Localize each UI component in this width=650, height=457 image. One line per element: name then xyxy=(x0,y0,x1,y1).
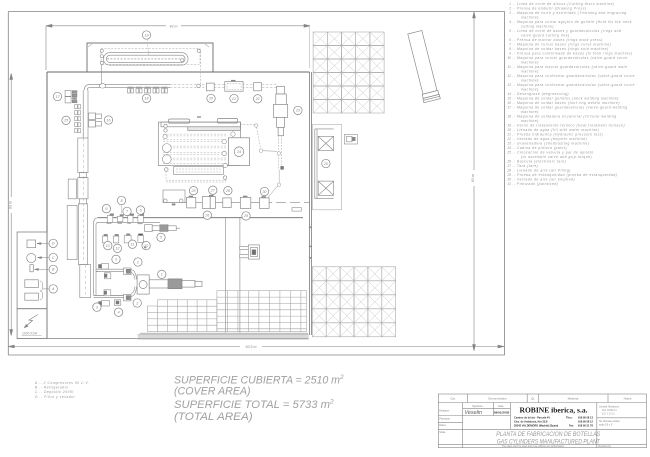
svg-text:20: 20 xyxy=(208,97,213,101)
svg-text:Physician: Physician xyxy=(439,418,450,421)
svg-text:.- Prensa para conformado de b: .- Prensa para conformado de bases (to f… xyxy=(512,51,632,55)
svg-text:5: 5 xyxy=(509,29,511,33)
svg-text:9: 9 xyxy=(105,207,107,211)
svg-text:63 m: 63 m xyxy=(9,201,13,209)
svg-text:8: 8 xyxy=(509,47,511,51)
svg-text:.- Vaciado de aire (air emptie: .- Vaciado de aire (air emptied) xyxy=(512,177,575,181)
svg-text:Scale: Scale xyxy=(439,431,446,434)
svg-text:.- Horno de tratamiento termic: .- Horno de tratamiento termico (heat tr… xyxy=(512,123,625,127)
svg-text:C: C xyxy=(52,256,55,260)
svg-text:.- Prensa de marcar bases (rin: .- Prensa de marcar bases (rings mark pr… xyxy=(512,38,603,42)
svg-text:Ctra. de Andalucia, Km 23,8: Ctra. de Andalucia, Km 23,8 xyxy=(514,419,548,423)
svg-text:22: 22 xyxy=(255,97,260,101)
svg-text:machine): machine) xyxy=(521,110,539,114)
svg-text:9: 9 xyxy=(509,51,511,55)
svg-text:23: 23 xyxy=(295,109,300,113)
svg-text:93.5 m: 93.5 m xyxy=(246,345,257,349)
svg-text:28: 28 xyxy=(506,168,511,172)
svg-text:Notes: Notes xyxy=(624,397,632,401)
svg-text:24: 24 xyxy=(506,146,511,150)
svg-text:Signature: Signature xyxy=(472,405,483,408)
svg-text:20: 20 xyxy=(323,162,328,166)
svg-text:918 95 08 12: 918 95 08 12 xyxy=(578,419,593,423)
svg-text:2: 2 xyxy=(339,374,344,381)
svg-text:Revision by: Revision by xyxy=(599,445,612,448)
svg-text:.- Maquina de soldar bases (ri: .- Maquina de soldar bases (rings sold m… xyxy=(512,47,608,51)
svg-text:0.1° 1.1° 0.1: 0.1° 1.1° 0.1 xyxy=(602,414,615,416)
svg-text:26: 26 xyxy=(204,213,209,217)
svg-text:.- Prueba de estanqueidad (pru: .- Prueba de estanqueidad (prueba de est… xyxy=(512,173,617,177)
svg-text:.- Tara (tare): .- Tara (tare) xyxy=(512,164,538,168)
svg-text:.- Maquina para curvar guardav: .- Maquina para curvar guardavalvulas (v… xyxy=(512,56,627,60)
svg-text:.- Maquina de soldadura ecuato: .- Maquina de soldadura ecuatorial (circ… xyxy=(512,114,616,118)
svg-text:63 m: 63 m xyxy=(471,174,475,182)
svg-text:31: 31 xyxy=(507,182,511,186)
svg-text:.- Llenado de aire (air fillin: .- Llenado de aire (air filling) xyxy=(512,168,570,172)
svg-text:machine): machine) xyxy=(521,15,539,19)
svg-text:29: 29 xyxy=(243,214,248,218)
svg-text:7: 7 xyxy=(509,42,511,46)
svg-text:12: 12 xyxy=(507,74,511,78)
svg-text:machine): machine) xyxy=(521,87,539,91)
svg-text:25: 25 xyxy=(191,189,196,193)
svg-text:(TOTAL AREA): (TOTAL AREA) xyxy=(174,411,253,423)
svg-text:.- Granalladora (shotblasting: .- Granalladora (shotblasting machine) xyxy=(512,141,589,145)
svg-text:18: 18 xyxy=(507,114,511,118)
svg-text:25: 25 xyxy=(506,150,511,154)
svg-text:SUPERFICIE TOTAL = 5733 m: SUPERFICIE TOTAL = 5733 m xyxy=(174,399,330,411)
svg-text:machine): machine) xyxy=(521,60,539,64)
svg-text:.- Linea de corte de bases y g: .- Linea de corte de bases y guardavalvu… xyxy=(512,29,621,33)
svg-text:.- Desengrase (degreassing): .- Desengrase (degreassing) xyxy=(512,92,569,96)
svg-text:11: 11 xyxy=(508,65,512,69)
svg-text:4: 4 xyxy=(509,20,511,24)
svg-text:Denomination: Denomination xyxy=(488,397,507,401)
svg-text:D .- Filtro y secador: D .- Filtro y secador xyxy=(35,395,76,399)
svg-text:1: 1 xyxy=(161,273,163,277)
svg-text:21: 21 xyxy=(506,132,511,136)
svg-text:.- Maquina para conformar guar: .- Maquina para conformar guardavalvulas… xyxy=(512,83,635,87)
svg-text:scale 0.5 ± 1°: scale 0.5 ± 1° xyxy=(599,424,613,426)
svg-text:3: 3 xyxy=(509,11,511,15)
svg-text:13: 13 xyxy=(106,244,110,248)
svg-text:(COVER AREA): (COVER AREA) xyxy=(174,385,251,397)
svg-text:Tfno.-: Tfno.- xyxy=(566,415,573,419)
svg-text:machine): machine) xyxy=(521,69,539,73)
svg-text:.- Llenado de agua (fill with: .- Llenado de agua (fill with water mach… xyxy=(512,128,599,132)
svg-text:918 95 21 78: 918 95 21 78 xyxy=(578,423,593,427)
svg-text:B .- Refrigerador: B .- Refrigerador xyxy=(35,386,69,390)
svg-text:.- Linea de corte de discos (C: .- Linea de corte de discos (Cutting dis… xyxy=(512,2,614,6)
svg-text:4: 4 xyxy=(118,310,120,314)
svg-text:Camino de la Isla - Parcela 44: Camino de la Isla - Parcela 44 xyxy=(514,415,550,419)
svg-text:19: 19 xyxy=(507,123,511,127)
svg-text:14: 14 xyxy=(507,92,511,96)
svg-text:.- Maquina de soldar guardaval: .- Maquina de soldar guardavalvulas (val… xyxy=(512,105,627,109)
svg-text:2: 2 xyxy=(135,301,138,305)
svg-text:Date: Date xyxy=(498,405,504,408)
svg-text:11: 11 xyxy=(131,242,135,246)
svg-text:±0.1 ±0.50 0.1: ±0.1 ±0.50 0.1 xyxy=(602,410,617,412)
svg-text:23: 23 xyxy=(506,141,511,145)
svg-text:1: 1 xyxy=(509,2,511,6)
svg-text:Cat.: Cat. xyxy=(450,397,456,401)
svg-text:Qt.: Qt. xyxy=(531,397,535,401)
svg-text:.- Vaciado de agua (emptier ma: .- Vaciado de agua (emptier machine) xyxy=(512,137,587,141)
svg-text:machine): machine) xyxy=(521,78,539,82)
svg-text:8: 8 xyxy=(121,199,123,203)
svg-text:16: 16 xyxy=(107,118,111,122)
svg-text:No otherwise written: No otherwise written xyxy=(599,420,621,423)
svg-text:22: 22 xyxy=(506,137,511,141)
svg-text:13: 13 xyxy=(507,83,511,87)
svg-text:5: 5 xyxy=(160,236,162,240)
svg-text:.- Maquina para marcar guardav: .- Maquina para marcar guardavalvulas (v… xyxy=(512,65,627,69)
svg-text:2: 2 xyxy=(329,399,334,406)
svg-text:Fax: Fax xyxy=(569,423,574,427)
svg-text:D: D xyxy=(52,242,55,246)
svg-text:.- Maquina para cortar agujero: .- Maquina para cortar agujero de gollet… xyxy=(512,20,632,24)
svg-text:28: 28 xyxy=(225,189,230,193)
svg-text:16: 16 xyxy=(507,101,511,105)
svg-text:valve-guard cutting line): valve-guard cutting line) xyxy=(521,33,570,37)
svg-text:The plans can't be used and co: The plans can't be used and copy without… xyxy=(502,445,565,448)
svg-text:.- Maquina de corte y estrella: .- Maquina de corte y estrellado (Trimmi… xyxy=(512,11,626,15)
svg-text:(to assemble valve and grip-to: (to assemble valve and grip-torque) xyxy=(521,155,592,159)
svg-text:12: 12 xyxy=(115,247,119,251)
svg-text:.- Colocacion de valvula y par: .- Colocacion de valvula y par de apriet… xyxy=(512,150,593,154)
svg-text:6: 6 xyxy=(140,208,142,212)
svg-text:15: 15 xyxy=(507,96,511,100)
svg-text:C .- Deposito 2000l: C .- Deposito 2000l xyxy=(35,390,74,394)
svg-text:Dates: Dates xyxy=(439,424,446,427)
svg-text:27: 27 xyxy=(506,164,511,168)
svg-text:28342 VALDEMORO (Madrid) (Spai: 28342 VALDEMORO (Madrid) (Spain) xyxy=(514,423,558,427)
svg-text:.- Prensa de embutir (Drawing: .- Prensa de embutir (Drawing Press) xyxy=(512,6,586,10)
svg-text:.- Maquina de soldar bases (fo: .- Maquina de soldar bases (foot ring we… xyxy=(512,101,620,105)
svg-text:Material: Material xyxy=(568,397,579,401)
svg-text:24: 24 xyxy=(236,150,241,154)
svg-text:918 95 08 13: 918 95 08 13 xyxy=(578,415,593,419)
svg-text:.- Maquina de soldar golletes: .- Maquina de soldar golletes (neck weld… xyxy=(512,96,618,100)
svg-text:.- Prueba hidraulica (Hydrauli: .- Prueba hidraulica (Hydraulic pressure… xyxy=(512,132,603,136)
svg-text:1600 KVA: 1600 KVA xyxy=(22,331,38,335)
svg-text:.- Maquina de curvar bases (ri: .- Maquina de curvar bases (rings curve … xyxy=(512,42,611,46)
svg-text:29: 29 xyxy=(506,173,511,177)
svg-text:6: 6 xyxy=(509,38,511,42)
svg-text:2: 2 xyxy=(508,6,511,10)
svg-text:19: 19 xyxy=(145,33,149,37)
svg-text:30: 30 xyxy=(507,177,511,181)
svg-text:15: 15 xyxy=(64,119,68,123)
svg-text:A .- 2 Compresores 50 C.V.: A .- 2 Compresores 50 C.V. xyxy=(34,381,89,385)
svg-text:machine): machine) xyxy=(521,119,539,123)
svg-text:A: A xyxy=(51,287,55,291)
svg-text:.- Cabina de pintura (paint): .- Cabina de pintura (paint) xyxy=(512,146,567,150)
svg-text:26: 26 xyxy=(506,159,511,163)
svg-text:cutting machine): cutting machine) xyxy=(521,24,554,28)
svg-text:20: 20 xyxy=(506,128,511,132)
svg-text:ROBINE iberica, s.a.: ROBINE iberica, s.a. xyxy=(520,406,588,415)
svg-text:.- Pintizado (paintized): .- Pintizado (paintized) xyxy=(512,182,558,186)
svg-text:PLANTA DE FABRICACION DE BOTEL: PLANTA DE FABRICACION DE BOTELLAS xyxy=(496,431,600,438)
svg-text:43 m: 43 m xyxy=(170,25,178,29)
svg-text:09/01/2003: 09/01/2003 xyxy=(494,410,510,414)
svg-text:.- Bascula (electronic tare): .- Bascula (electronic tare) xyxy=(512,159,566,163)
svg-text:3: 3 xyxy=(96,305,98,309)
svg-text:Designer: Designer xyxy=(439,410,449,413)
svg-text:10: 10 xyxy=(507,56,511,60)
svg-text:3: 3 xyxy=(115,258,117,262)
svg-text:2: 2 xyxy=(136,260,139,264)
svg-text:17: 17 xyxy=(507,105,511,109)
svg-text:General Tolerances: General Tolerances xyxy=(599,406,620,409)
svg-text:30: 30 xyxy=(263,190,267,194)
svg-text:21: 21 xyxy=(231,97,236,101)
svg-text:18: 18 xyxy=(145,97,149,101)
svg-text:.- Maquina para conformar guar: .- Maquina para conformar guardavalvulas… xyxy=(512,74,635,78)
svg-text:Veselin: Veselin xyxy=(465,410,482,416)
